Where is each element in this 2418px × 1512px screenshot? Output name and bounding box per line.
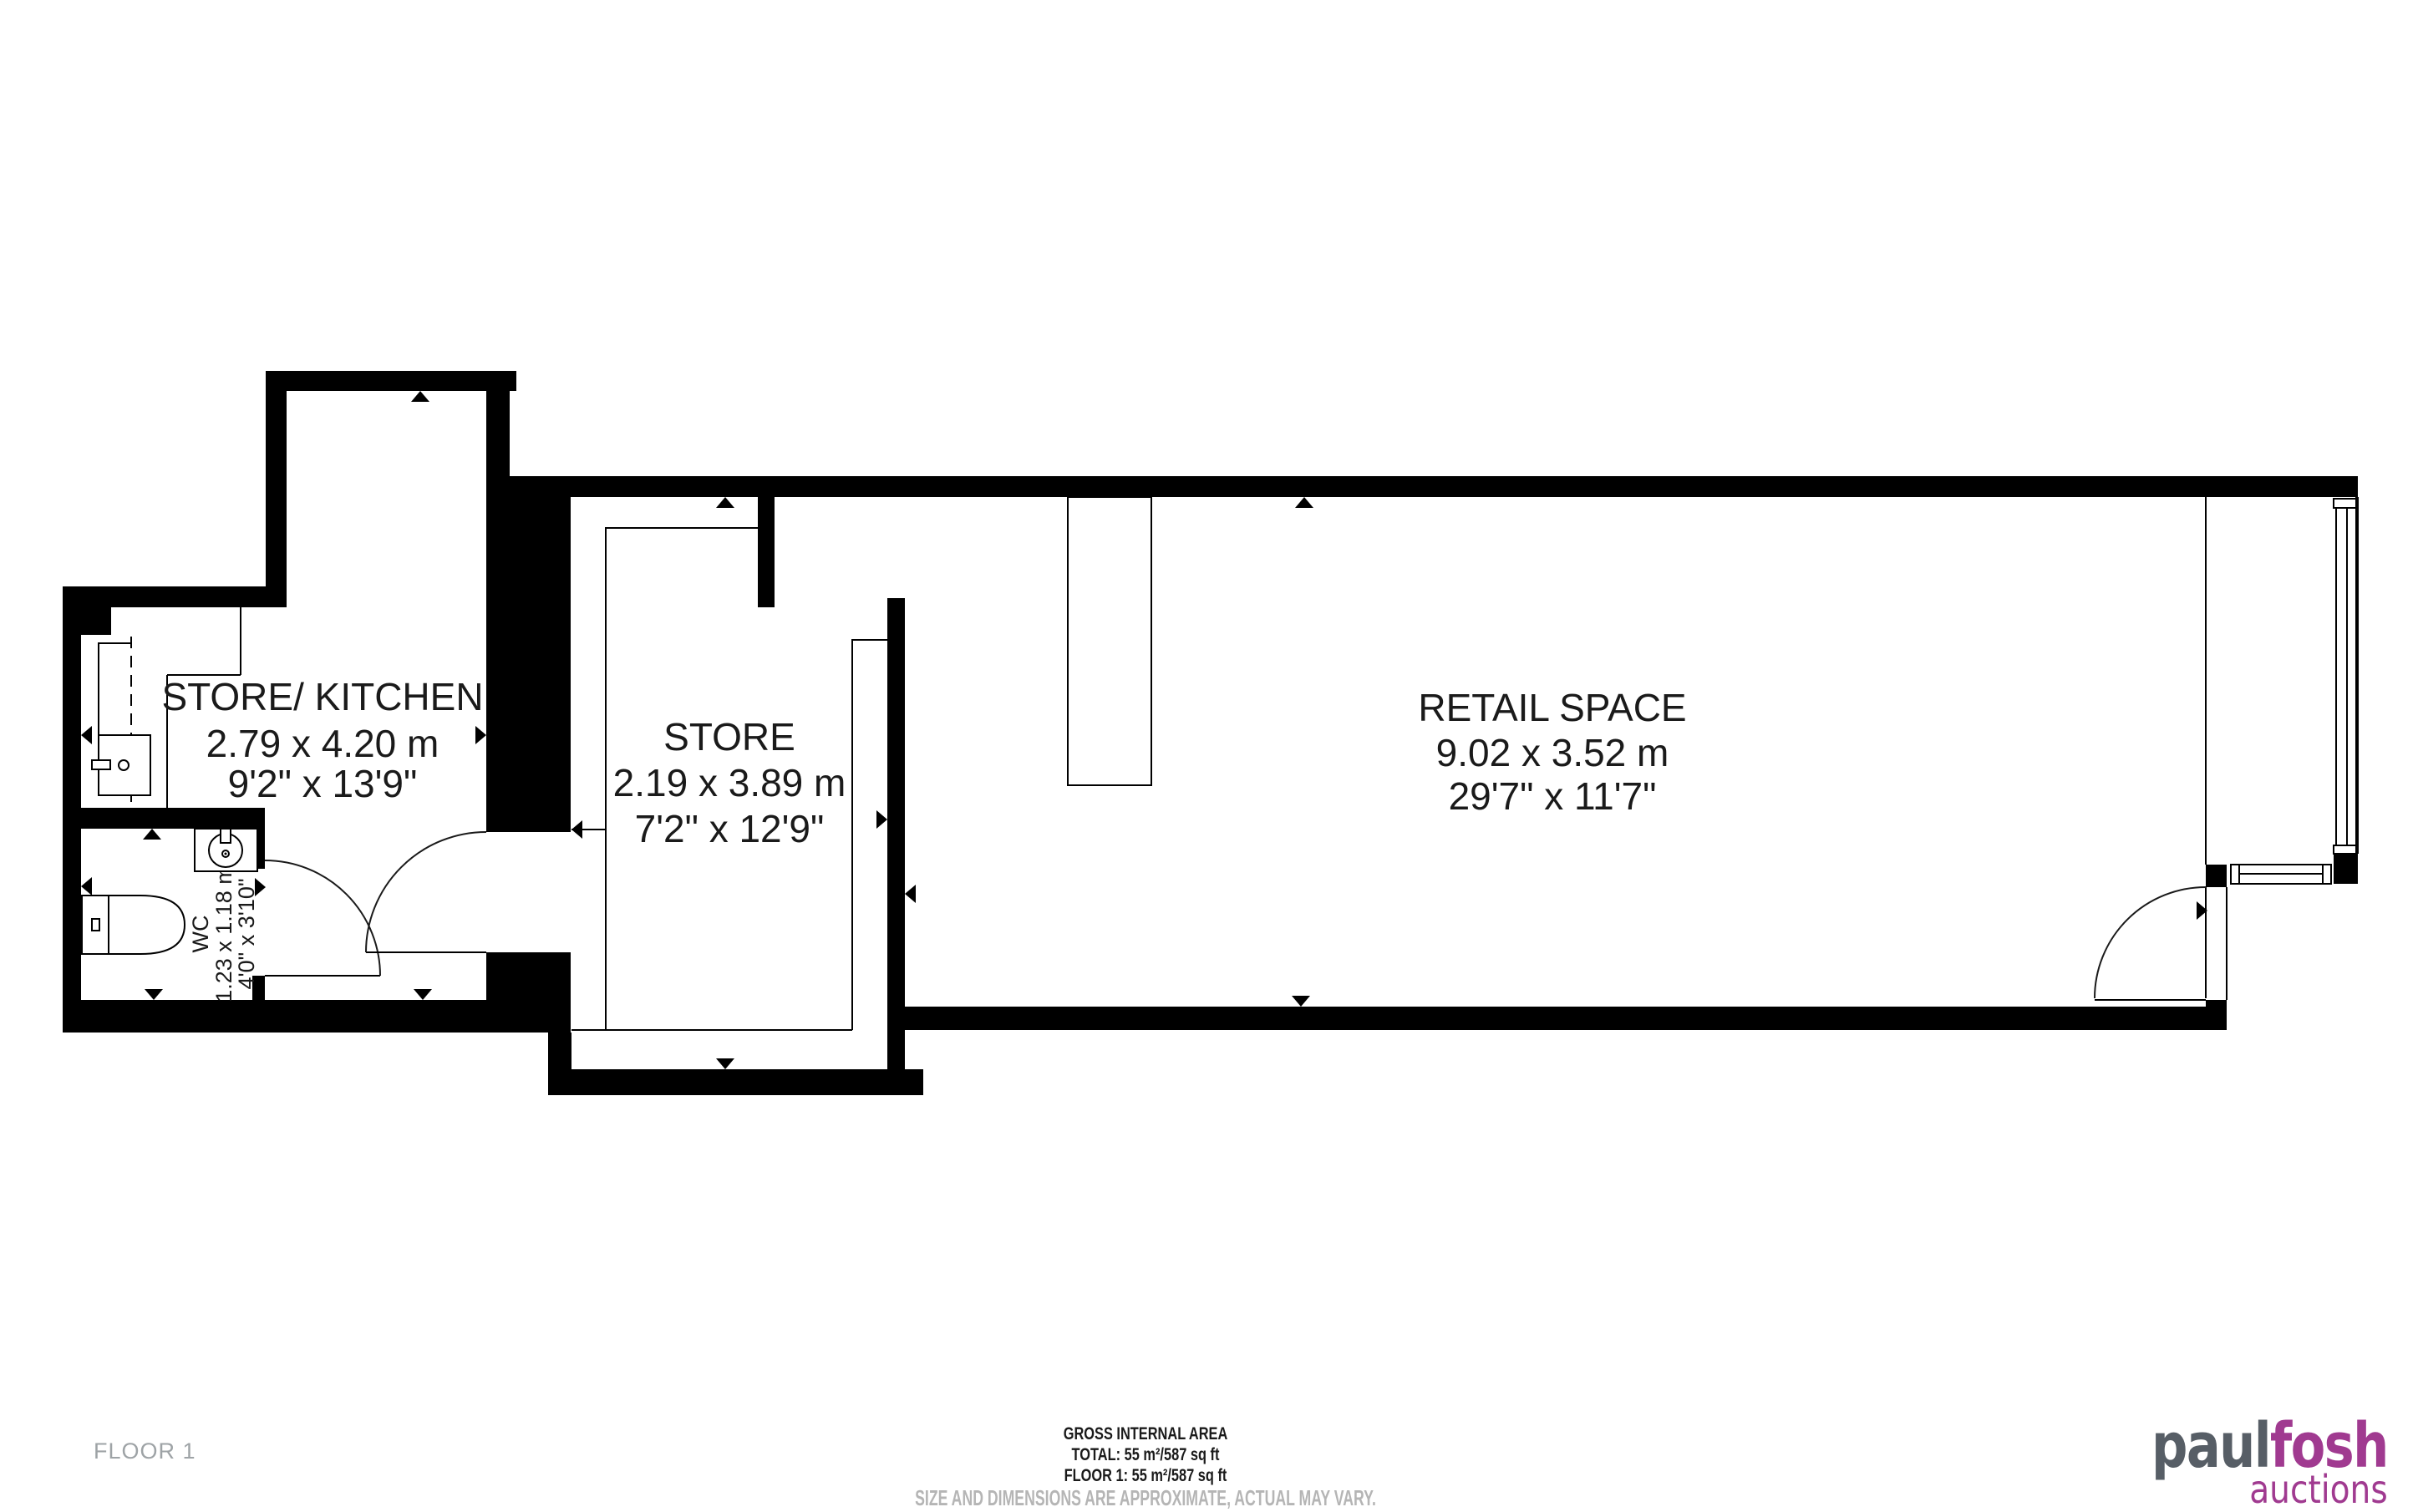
toilet-flush-button xyxy=(92,919,99,931)
kitchen-name: STORE/ KITCHEN xyxy=(161,675,483,718)
wall-bottom-left-section xyxy=(63,1000,571,1033)
footer-floor1-area: FLOOR 1: 55 m²/587 sq ft xyxy=(881,1465,1410,1486)
arrow-down-store xyxy=(716,1058,734,1069)
window-outer-edge xyxy=(2355,497,2359,854)
wall-protrusion-top xyxy=(266,371,516,391)
arrow-left-kitchen xyxy=(81,726,92,744)
store-imperial: 7'2" x 12'9" xyxy=(635,807,825,850)
arrow-right-store-wall xyxy=(876,810,887,829)
arrow-down-retail xyxy=(1292,996,1310,1007)
arrow-left-wc xyxy=(81,877,92,896)
arrow-left-store-door xyxy=(571,820,582,839)
shopfront-window-glazing xyxy=(2336,508,2347,845)
wall-window-pier xyxy=(2334,854,2358,884)
retail-imperial: 29'7" x 11'7" xyxy=(1449,774,1657,818)
wall-top-main xyxy=(486,476,2358,497)
arrow-right-kitchen xyxy=(475,726,486,744)
arrow-down-corridor xyxy=(414,989,432,1000)
wall-retail-bottom xyxy=(892,1007,2227,1030)
wall-wc-top xyxy=(63,808,265,829)
floorplan-page: { "rooms": { "kitchen": { "name": "STORE… xyxy=(0,0,2418,1510)
entrance-side-window-cap-right xyxy=(2323,865,2331,884)
boiler-switch xyxy=(92,760,110,769)
wc-label: WC 1.23 x 1.18 m 4'0" x 3'10" xyxy=(188,865,259,1002)
arrow-up-retail xyxy=(1295,497,1313,508)
wall-kitchen-top xyxy=(63,586,287,607)
wc-metric: 1.23 x 1.18 m xyxy=(211,865,236,1002)
wall-protrusion-right xyxy=(486,391,510,476)
arrow-up-protrusion xyxy=(411,391,429,402)
arrow-down-wc xyxy=(145,989,163,1000)
arrow-up-store xyxy=(716,497,734,508)
kitchen-label: STORE/ KITCHEN 2.79 x 4.20 m 9'2" x 13'9… xyxy=(161,675,483,805)
arrow-up-wc xyxy=(143,829,161,840)
wall-stub-store-top xyxy=(758,497,775,607)
footer-area-summary: GROSS INTERNAL AREA TOTAL: 55 m²/587 sq … xyxy=(806,1423,1484,1509)
shopfront-window-cap-top xyxy=(2334,499,2356,508)
footer-gross-internal-area: GROSS INTERNAL AREA xyxy=(881,1423,1410,1444)
wall-column-upper xyxy=(486,497,571,832)
store-label: STORE 2.19 x 3.89 m 7'2" x 12'9" xyxy=(613,715,846,850)
wc-imperial: 4'0" x 3'10" xyxy=(234,878,259,989)
toilet-bowl xyxy=(109,896,185,954)
wall-door-pier xyxy=(2206,1000,2227,1030)
wall-corner-block xyxy=(2206,865,2227,887)
footer-total-area: TOTAL: 55 m²/587 sq ft xyxy=(881,1444,1410,1465)
retail-metric: 9.02 x 3.52 m xyxy=(1436,731,1669,774)
wall-store-right xyxy=(887,598,905,1073)
store-inner-outline-right xyxy=(852,640,887,1030)
retail-name: RETAIL SPACE xyxy=(1418,686,1686,729)
entrance-side-window-cap-left xyxy=(2231,865,2239,884)
footer-disclaimer: SIZE AND DIMENSIONS ARE APPROXIMATE, ACT… xyxy=(915,1486,1376,1509)
kitchen-door-swing xyxy=(366,832,486,952)
entrance-door-swing xyxy=(2095,887,2206,998)
wc-door-swing xyxy=(265,860,380,976)
wall-protrusion-left xyxy=(266,371,287,586)
paulfosh-auctions-logo: paulfosh auctions xyxy=(2100,1415,2388,1512)
shopfront-window-cap-bottom xyxy=(2334,845,2356,854)
sink-drain-dot xyxy=(225,853,227,855)
kitchen-metric: 2.79 x 4.20 m xyxy=(206,722,439,765)
floor-plan: STORE/ KITCHEN 2.79 x 4.20 m 9'2" x 13'9… xyxy=(0,0,2418,1510)
retail-stair-outline xyxy=(1068,497,1151,785)
wc-name: WC xyxy=(188,916,213,953)
arrow-left-retail-wall xyxy=(905,885,916,903)
kitchen-imperial: 9'2" x 13'9" xyxy=(228,762,418,805)
store-name: STORE xyxy=(663,715,795,759)
retail-label: RETAIL SPACE 9.02 x 3.52 m 29'7" x 11'7" xyxy=(1418,686,1686,818)
store-metric: 2.19 x 3.89 m xyxy=(613,761,846,804)
sink-tap xyxy=(221,829,231,843)
wall-column-lower xyxy=(486,952,571,1000)
floor-label: FLOOR 1 xyxy=(94,1438,196,1464)
wall-store-bottom xyxy=(548,1069,923,1095)
boiler-dial xyxy=(119,760,129,770)
windows xyxy=(2231,499,2356,884)
logo-auctions: auctions xyxy=(2143,1467,2388,1512)
